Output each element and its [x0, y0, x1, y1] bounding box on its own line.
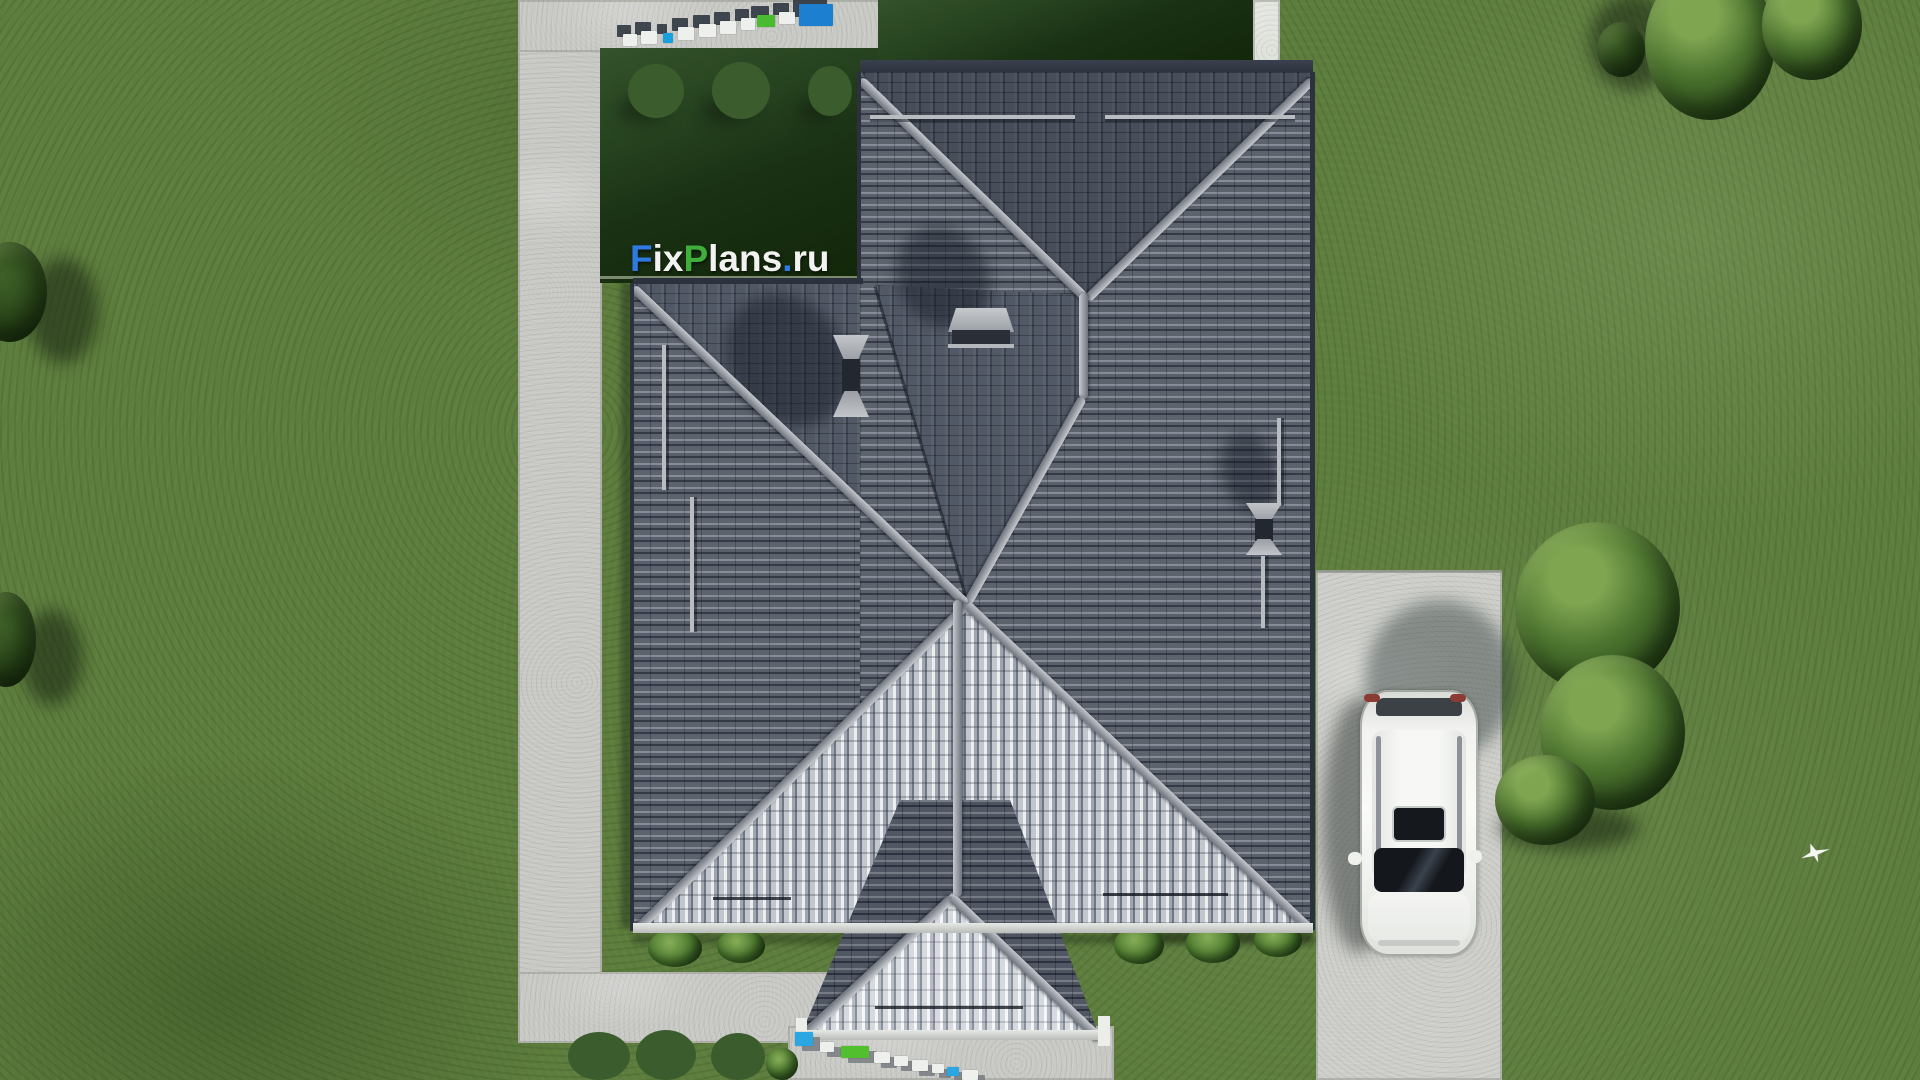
white-suv: [1352, 688, 1484, 964]
front-ridge: [953, 600, 962, 897]
car-mirror: [1468, 850, 1482, 863]
roof-window-frame: [833, 391, 869, 417]
porch-gutter: [798, 1030, 1103, 1040]
car-sunroof: [1394, 808, 1444, 840]
roof-window-glass: [842, 359, 860, 393]
roof-window: [948, 308, 1014, 348]
driveway-edge: [1316, 570, 1502, 573]
garden-path-left: [518, 0, 602, 975]
wing-top-eave: [633, 278, 863, 284]
car-windshield: [1374, 848, 1464, 892]
roof-window-glass: [952, 330, 1010, 344]
snow-guard: [690, 497, 694, 632]
tree: [1597, 22, 1645, 77]
roof-window: [833, 335, 869, 417]
car-taillight: [1450, 694, 1466, 702]
aerial-render: FixPlans.ru: [0, 0, 1920, 1080]
main-ridge: [1079, 293, 1088, 399]
roof-window-sill: [948, 344, 1014, 348]
porch-column-right: [1098, 1016, 1110, 1046]
snow-guard: [870, 115, 1075, 119]
car-rear-window: [1376, 698, 1462, 716]
green-bush: [766, 1048, 798, 1080]
snow-guard: [1277, 418, 1281, 506]
roof-window-frame: [833, 335, 869, 361]
car-grille: [1378, 940, 1460, 946]
garden-path-top: [518, 0, 880, 52]
tree: [1495, 755, 1595, 845]
snow-guard: [1105, 115, 1295, 119]
roof-window-frame: [948, 308, 1014, 332]
snow-guard-shadow: [875, 1006, 1023, 1009]
snow-guard: [662, 345, 666, 490]
snow-guard-shadow: [713, 897, 791, 900]
house-roof: [630, 60, 1320, 1050]
roof-window-glass: [1255, 519, 1273, 541]
wing-left-eave: [630, 283, 634, 931]
snow-guard-shadow: [1103, 893, 1228, 896]
car-hood: [1368, 892, 1470, 942]
snow-guard: [1261, 556, 1265, 628]
white-flower-bush: [568, 1032, 630, 1080]
bottom-gutter: [633, 923, 1313, 933]
right-eave: [1310, 72, 1315, 930]
car-mirror: [1348, 852, 1362, 865]
car-taillight: [1364, 694, 1380, 702]
roof-window-frame: [1246, 539, 1282, 555]
roof-window: [1246, 503, 1282, 555]
porch-column-left: [796, 1018, 807, 1044]
eave-edge: [857, 72, 861, 284]
